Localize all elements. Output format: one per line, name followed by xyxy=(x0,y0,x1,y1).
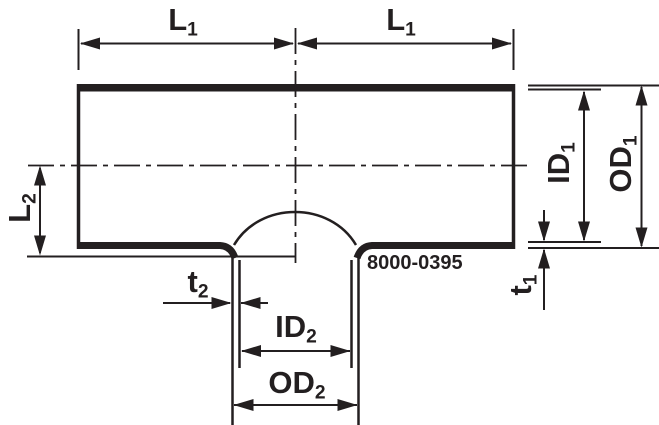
dim-label-id2: ID2 xyxy=(275,309,317,348)
arrowhead-l1-left-start xyxy=(80,38,100,50)
dim-label-t1: t1 xyxy=(503,274,542,295)
dim-label-od2: OD2 xyxy=(268,365,325,404)
dim-label-l1-right: L1 xyxy=(386,2,416,41)
centerlines xyxy=(28,28,530,263)
dim-label-id1: ID1 xyxy=(541,142,580,184)
arrowhead-l1-left-end xyxy=(274,38,294,50)
arrowhead-l1-right-end xyxy=(492,38,512,50)
drawing-canvas: L1 L1 L2 t2 ID2 OD2 ID1 OD1 t1 8000-0395 xyxy=(0,0,659,425)
dim-label-l2: L2 xyxy=(2,193,41,223)
arrowhead-t2-left xyxy=(212,297,232,309)
arrowhead-id1-bottom xyxy=(578,222,590,242)
arrowhead-od1-bottom xyxy=(636,228,648,248)
dim-label-t2: t2 xyxy=(187,264,208,303)
arrowhead-od2-left xyxy=(234,399,254,411)
arrowhead-t1-down xyxy=(538,222,550,242)
dimension-lines xyxy=(34,38,648,412)
arrowhead-od2-right xyxy=(338,399,358,411)
part-number: 8000-0395 xyxy=(367,252,463,274)
arrowhead-l1-right-start xyxy=(297,38,317,50)
arrowhead-l2-top xyxy=(34,166,46,186)
arrowhead-t2-right xyxy=(241,297,261,309)
dimension-labels: L1 L1 L2 t2 ID2 OD2 ID1 OD1 t1 8000-0395 xyxy=(2,2,642,404)
pipe-tee-technical-drawing: L1 L1 L2 t2 ID2 OD2 ID1 OD1 t1 8000-0395 xyxy=(0,0,659,425)
arrowhead-od1-top xyxy=(636,86,648,106)
arrowhead-id2-right xyxy=(331,345,351,357)
arrowhead-id2-left xyxy=(241,345,261,357)
dim-label-od1: OD1 xyxy=(603,135,642,193)
arrowhead-l2-bottom xyxy=(34,236,46,256)
arrowhead-id1-top xyxy=(578,91,590,111)
arrowhead-t1-up xyxy=(538,249,550,269)
dim-label-l1-left: L1 xyxy=(168,2,198,41)
